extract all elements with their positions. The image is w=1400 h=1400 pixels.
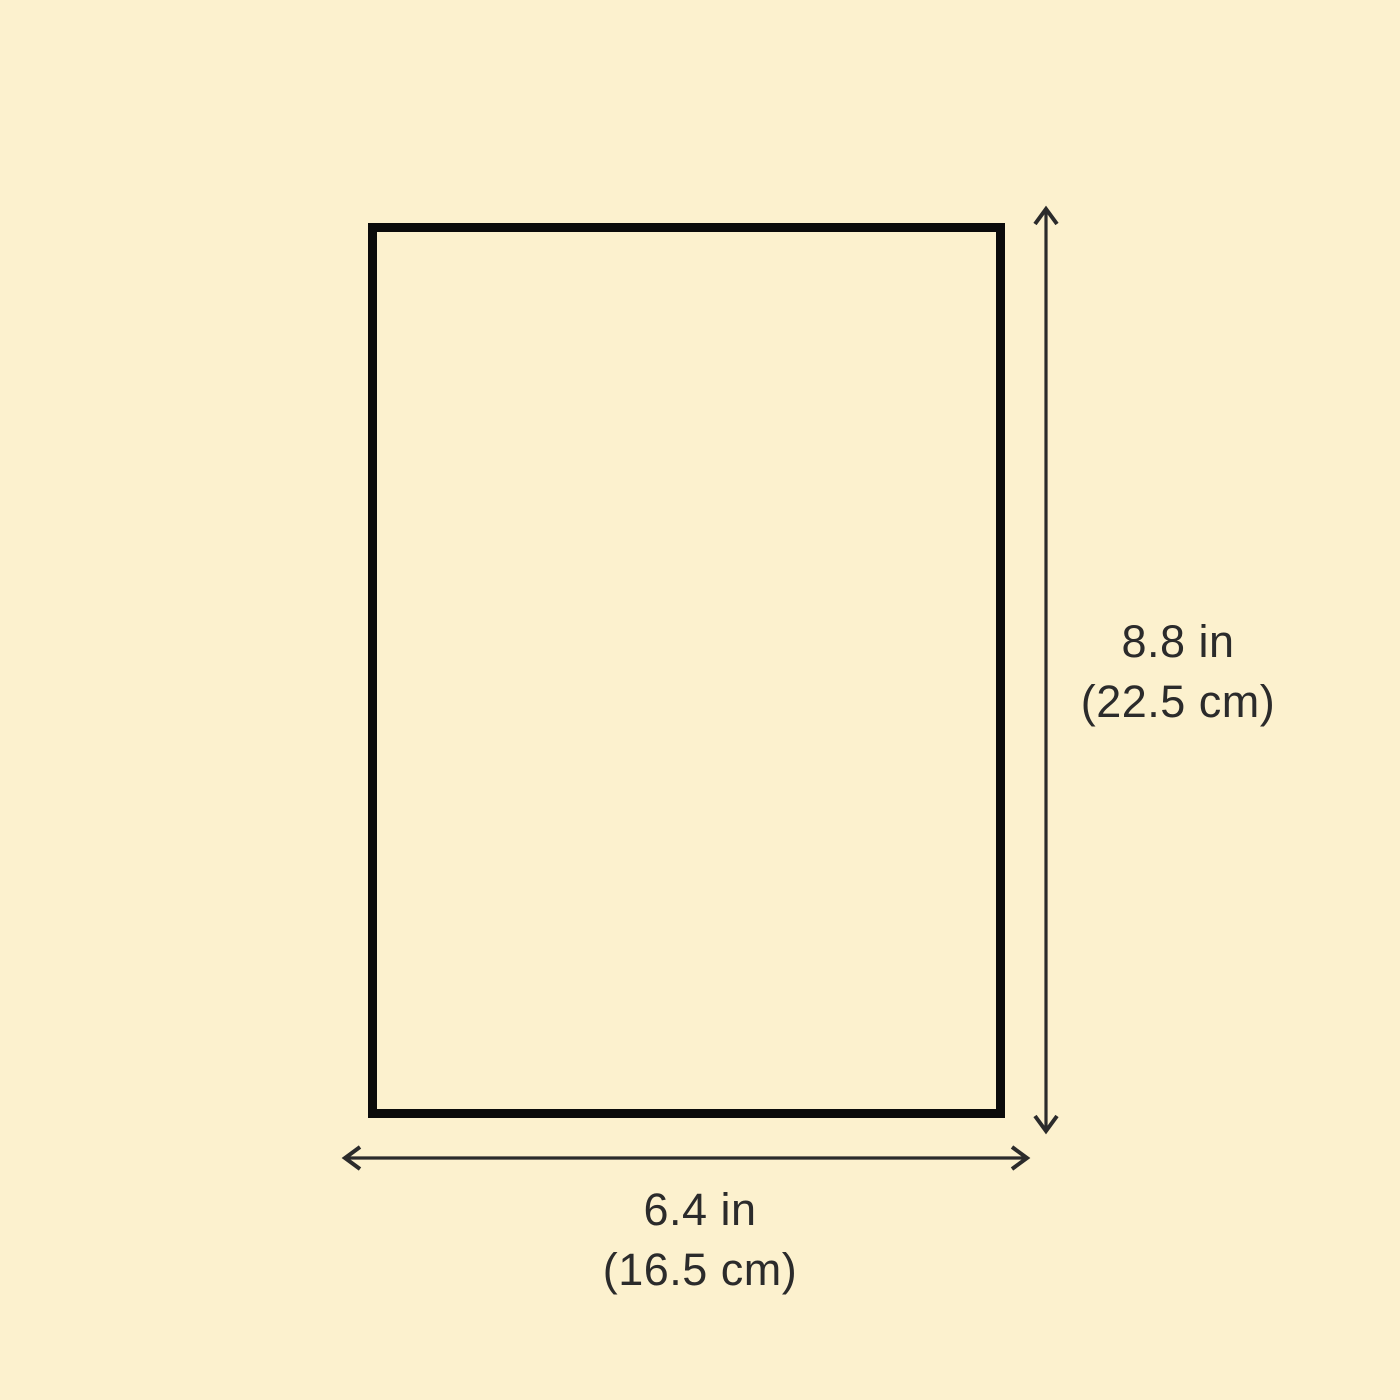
height-centimeters-text: (22.5 cm) (1028, 672, 1328, 732)
dimension-diagram: 8.8 in (22.5 cm) 6.4 in (16.5 cm) (0, 0, 1400, 1400)
product-outline-rectangle (368, 223, 1005, 1118)
height-inches-text: 8.8 in (1028, 612, 1328, 672)
width-centimeters-text: (16.5 cm) (550, 1240, 850, 1300)
width-dimension-arrow-icon (338, 1138, 1034, 1178)
height-dimension-label: 8.8 in (22.5 cm) (1028, 612, 1328, 732)
width-inches-text: 6.4 in (550, 1180, 850, 1240)
width-dimension-label: 6.4 in (16.5 cm) (550, 1180, 850, 1300)
